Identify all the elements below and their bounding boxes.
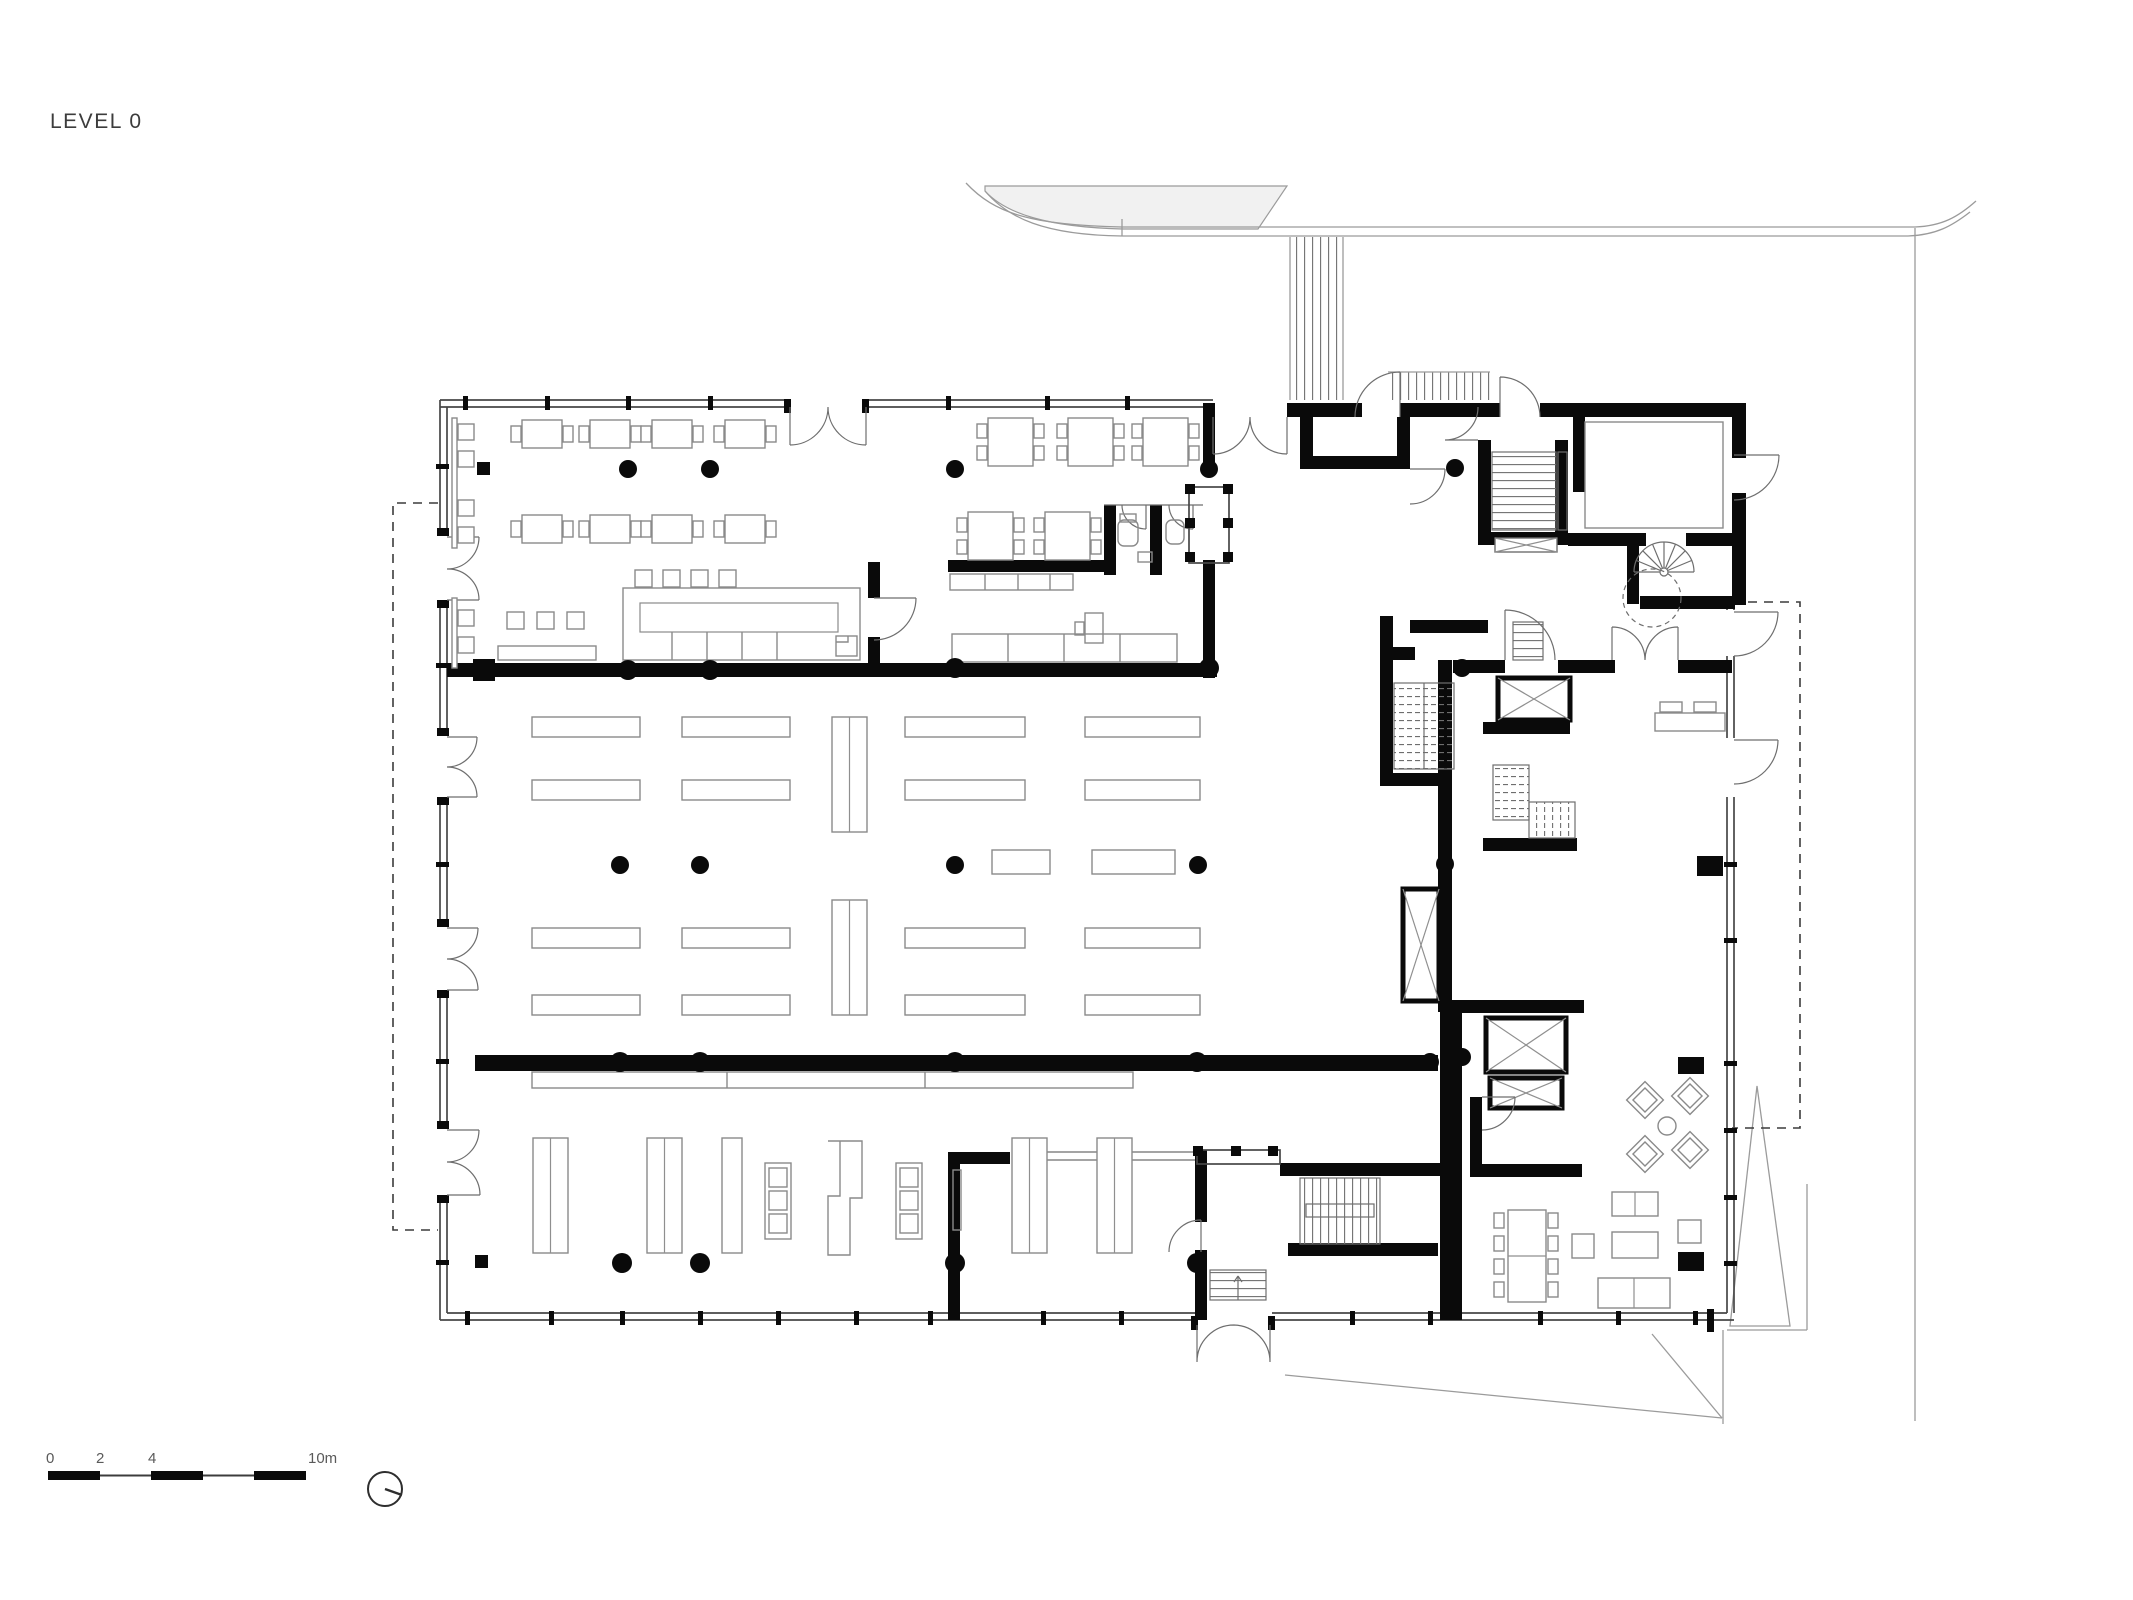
mini-stair: [1513, 622, 1543, 660]
reception-desk: [1655, 702, 1725, 731]
scale-label-2: 2: [96, 1450, 104, 1467]
scale-label-0: 0: [46, 1450, 54, 1467]
meeting-table: [1494, 1210, 1558, 1302]
square-column: [475, 1255, 488, 1268]
dogleg-stair-b: [1529, 802, 1575, 838]
elevator: [1403, 889, 1439, 1001]
dining-tables: [957, 418, 1199, 560]
low-cabinet: [498, 646, 596, 660]
elevator: [1498, 678, 1570, 720]
exterior-ramp-steps: [1292, 237, 1342, 400]
cafe-tables: [511, 420, 776, 543]
scale-label-4: 4: [148, 1450, 156, 1467]
s-shelf: [828, 1141, 862, 1255]
north-stair: [1492, 452, 1556, 530]
dashed-line-west: [393, 503, 438, 1230]
shaft-box: [1495, 538, 1557, 552]
room-lining: [1585, 422, 1723, 528]
entry-steps: [1388, 372, 1490, 400]
service-counter: [532, 1072, 1133, 1088]
site-layer: [393, 183, 1976, 1424]
kitchen-counter: [950, 574, 1177, 662]
bar-counter: [623, 588, 860, 660]
dogleg-stair-a: [1493, 765, 1529, 820]
scale-bar: 0 2 4 10m: [46, 1450, 337, 1480]
landscape-triangle: [1730, 1086, 1790, 1326]
north-arrow-icon: [368, 1472, 402, 1506]
dashed-canopy-east: [1732, 602, 1800, 1128]
floor-plan-svg: 0 2 4 10m: [0, 0, 2133, 1600]
drawing-sheet: LEVEL 0: [0, 0, 2133, 1600]
wall-bench: [452, 418, 474, 668]
lounge-seating: [1572, 856, 1723, 1308]
elevator: [1490, 1078, 1562, 1108]
columns-layer: [475, 459, 1471, 1273]
south-stair: [1300, 1178, 1380, 1244]
scale-label-10m: 10m: [308, 1450, 337, 1467]
elevator: [1486, 1018, 1566, 1072]
square-column: [477, 462, 490, 475]
